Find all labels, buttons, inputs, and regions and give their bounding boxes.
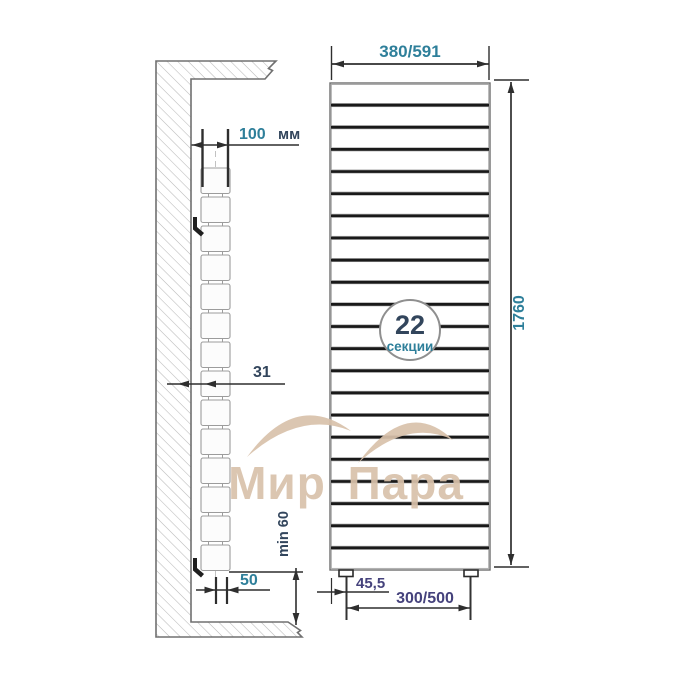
side-section-block xyxy=(201,487,230,513)
radiator-tube-row xyxy=(331,151,488,170)
dim-wall-offset-value: 100 xyxy=(239,126,266,143)
side-section-block xyxy=(201,342,230,368)
radiator-tube-row xyxy=(331,549,488,568)
watermark-text: Мир Пара xyxy=(228,457,464,509)
sections-badge-count: 22 xyxy=(395,310,425,340)
diagram-svg: 100 мм 31 50 min 60 380/591 1760 45,5 30… xyxy=(0,0,700,700)
dim-height-label: 1760 xyxy=(511,295,528,331)
dim-wall-offset-unit: мм xyxy=(278,126,300,143)
radiator-tube-row xyxy=(331,85,488,104)
side-section-block xyxy=(201,545,230,571)
dim-floor-clearance-label: min 60 xyxy=(276,511,292,557)
radiator-tube-row xyxy=(331,107,488,126)
side-section-block xyxy=(201,197,230,223)
dim-bottom-label: 50 xyxy=(240,572,258,589)
side-section-block xyxy=(201,313,230,339)
side-section-block xyxy=(201,429,230,455)
radiator-tube-row xyxy=(331,394,488,413)
dim-width-label: 380/591 xyxy=(379,42,440,61)
dim-foot-offset-label: 45,5 xyxy=(356,575,385,592)
radiator-tube-row xyxy=(331,527,488,546)
side-section-block xyxy=(201,168,230,194)
foot-pad-left xyxy=(339,570,353,577)
radiator-tube-row xyxy=(331,439,488,458)
sections-badge-label: секции xyxy=(387,339,434,354)
side-section-block xyxy=(201,226,230,252)
dim-foot-spacing-label: 300/500 xyxy=(396,590,454,607)
radiator-tube-row xyxy=(331,372,488,391)
radiator-tube-row xyxy=(331,173,488,192)
radiator-tube-row xyxy=(331,129,488,148)
side-section-block xyxy=(201,255,230,281)
sections-badge: 22 секции xyxy=(380,300,440,360)
radiator-dimension-diagram: 100 мм 31 50 min 60 380/591 1760 45,5 30… xyxy=(0,0,700,700)
side-section-block xyxy=(201,516,230,542)
radiator-tube-row xyxy=(331,262,488,281)
radiator-tube-row xyxy=(331,195,488,214)
radiator-tube-row xyxy=(331,217,488,236)
foot-pad-right xyxy=(464,570,478,577)
side-section-block xyxy=(201,458,230,484)
radiator-tube-row xyxy=(331,239,488,258)
dim-depth-label: 31 xyxy=(253,364,271,381)
side-radiator-sections xyxy=(201,168,230,571)
side-section-block xyxy=(201,284,230,310)
side-section-block xyxy=(201,400,230,426)
